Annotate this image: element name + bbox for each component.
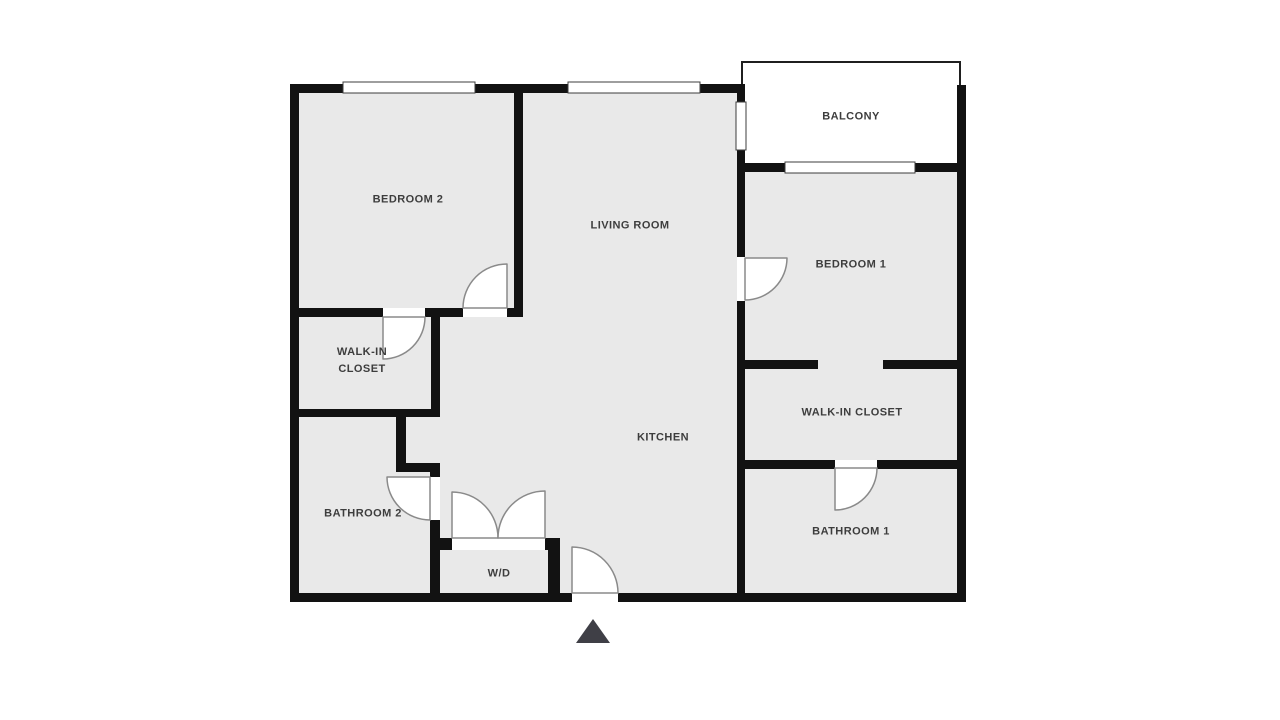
room-label-walk-in-closet-1: WALK-IN CLOSET bbox=[767, 404, 937, 421]
closet1-bathroom1-wall-right bbox=[877, 460, 966, 469]
room-label-kitchen: KITCHEN bbox=[603, 429, 723, 446]
bedroom2-closet-wall-c bbox=[507, 308, 523, 317]
floor-plan-svg bbox=[0, 0, 1280, 720]
room-label-walk-in-closet-2: WALK-IN CLOSET bbox=[317, 344, 407, 378]
balcony-side-window bbox=[736, 102, 746, 150]
room-label-bedroom-1: BEDROOM 1 bbox=[781, 256, 921, 273]
room-label-bedroom-2: BEDROOM 2 bbox=[338, 191, 478, 208]
bedroom2-closet-wall-b bbox=[425, 308, 463, 317]
kitchen-right-wall-upper bbox=[737, 172, 745, 257]
bedroom2-window bbox=[343, 82, 475, 93]
room-label-bathroom-2: BATHROOM 2 bbox=[293, 505, 433, 522]
bedroom2-door-sill bbox=[463, 308, 507, 317]
bathroom2-right-wall-mid bbox=[430, 471, 440, 477]
bathroom2-right-wall-upper bbox=[396, 417, 406, 465]
bedroom2-closet-wall-a bbox=[290, 308, 383, 317]
room-label-balcony: BALCONY bbox=[791, 108, 911, 125]
room-label-washer-dryer: W/D bbox=[469, 565, 529, 582]
floor-plan: BEDROOM 2 LIVING ROOM BALCONY BEDROOM 1 … bbox=[0, 0, 1280, 720]
living-room-window bbox=[568, 82, 700, 93]
bathroom2-right-wall-lower bbox=[430, 520, 440, 602]
room-label-bathroom-1: BATHROOM 1 bbox=[781, 523, 921, 540]
bedroom1-closet-wall-left bbox=[737, 360, 818, 369]
bedroom1-closet-wall-right bbox=[883, 360, 966, 369]
balcony-slider-window bbox=[785, 162, 915, 173]
outer-bottom-wall bbox=[290, 593, 966, 602]
closet2-right-wall bbox=[431, 308, 440, 417]
room-label-living-room: LIVING ROOM bbox=[550, 217, 710, 234]
outer-right-wall bbox=[957, 85, 966, 602]
bathroom2-jog-wall bbox=[396, 463, 440, 472]
outer-left-wall bbox=[290, 84, 299, 602]
closet1-bathroom1-wall-left bbox=[737, 460, 835, 469]
closet2-door-sill bbox=[383, 308, 425, 317]
bedroom2-living-wall bbox=[514, 84, 523, 317]
bedroom1-door-sill bbox=[737, 257, 745, 301]
wd-top-wall-left bbox=[430, 538, 452, 550]
entry-arrow bbox=[576, 619, 610, 643]
wd-door-sill bbox=[452, 538, 545, 550]
bathroom2-top-wall bbox=[290, 409, 440, 417]
wd-right-wall bbox=[548, 538, 560, 602]
kitchen-right-wall-lower bbox=[737, 301, 745, 594]
